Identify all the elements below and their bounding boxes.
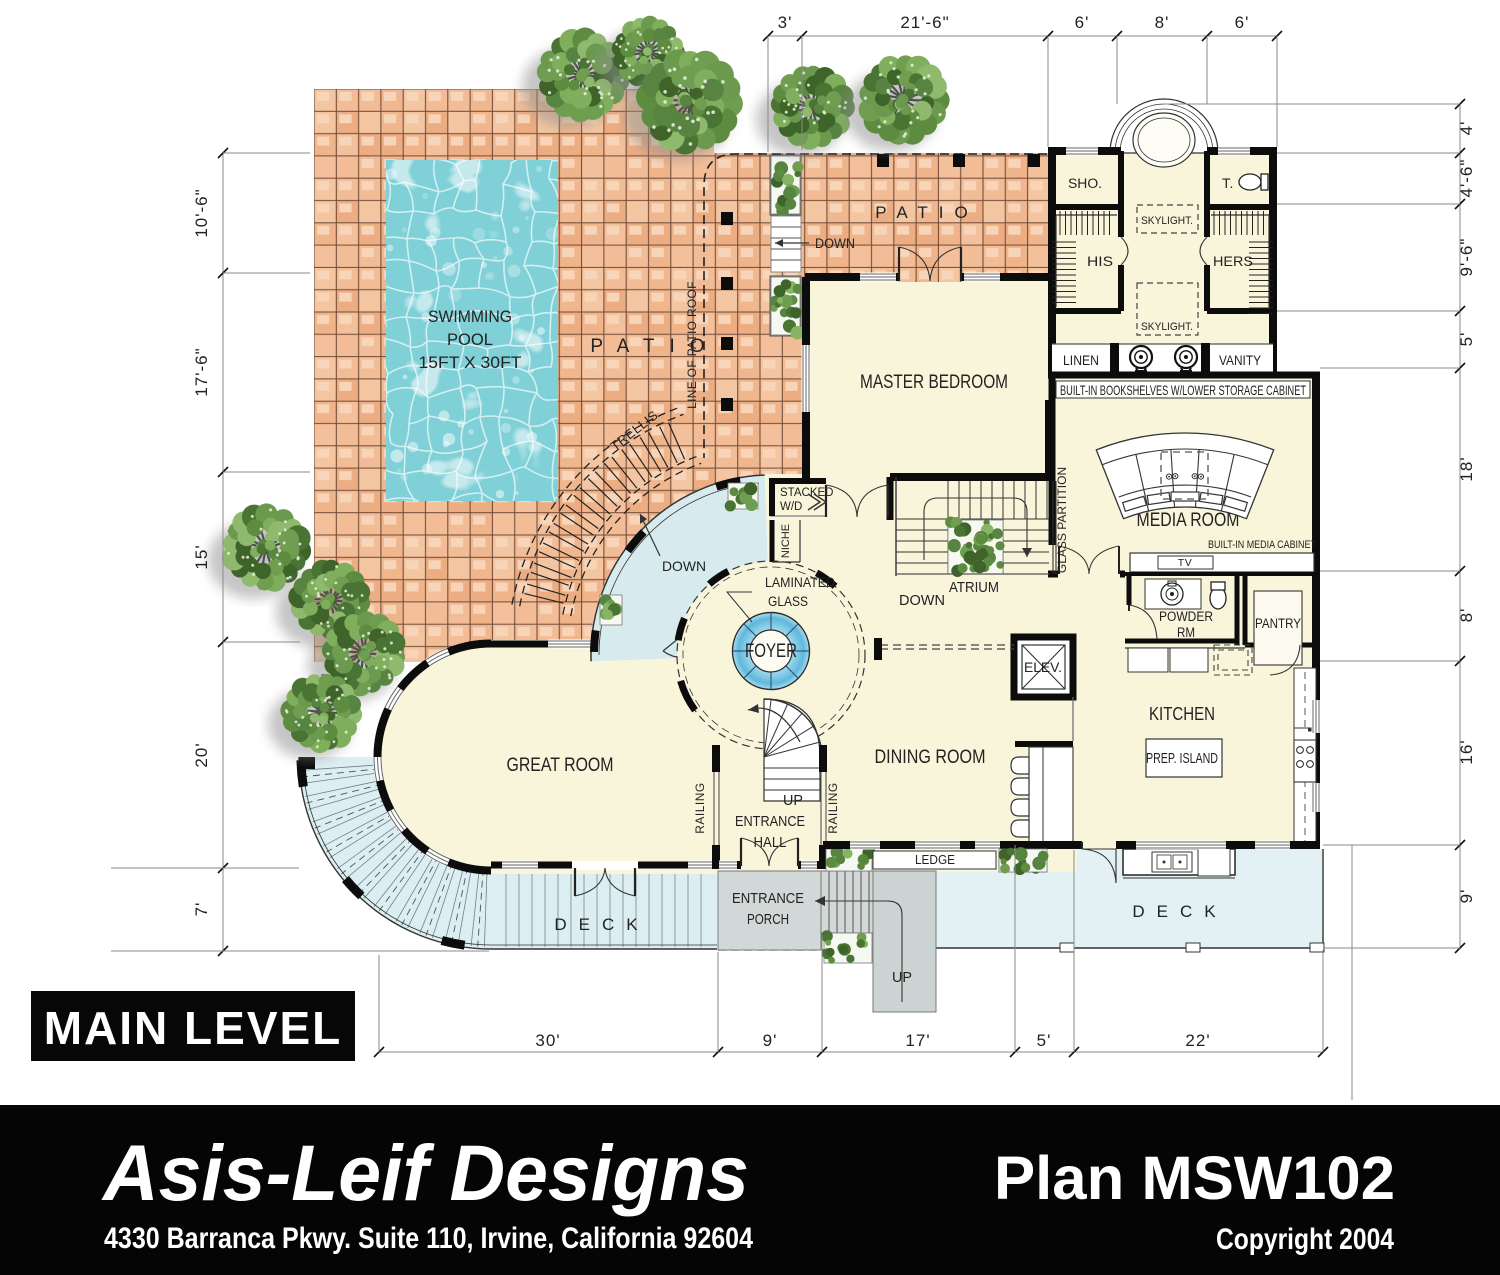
svg-text:GLASS PARTITION: GLASS PARTITION bbox=[1055, 467, 1069, 573]
svg-text:6': 6' bbox=[1075, 13, 1090, 32]
svg-text:PORCH: PORCH bbox=[747, 911, 789, 928]
svg-text:16': 16' bbox=[1457, 739, 1476, 764]
svg-text:PATIO: PATIO bbox=[590, 336, 719, 357]
svg-text:DOWN: DOWN bbox=[815, 236, 855, 251]
svg-text:HIS: HIS bbox=[1087, 254, 1113, 269]
svg-text:DOWN: DOWN bbox=[899, 593, 945, 609]
svg-text:18': 18' bbox=[1457, 456, 1476, 481]
svg-text:6': 6' bbox=[1235, 13, 1250, 32]
svg-text:GREAT ROOM: GREAT ROOM bbox=[507, 754, 614, 776]
svg-text:4330 Barranca Pkwy. Suite 110,: 4330 Barranca Pkwy. Suite 110, Irvine, C… bbox=[104, 1222, 753, 1255]
svg-text:GLASS: GLASS bbox=[768, 594, 808, 609]
svg-text:VANITY: VANITY bbox=[1219, 353, 1261, 368]
svg-text:17'-6": 17'-6" bbox=[192, 347, 211, 396]
svg-text:W/D: W/D bbox=[780, 501, 802, 513]
svg-text:NICHE: NICHE bbox=[780, 524, 792, 558]
svg-text:20': 20' bbox=[192, 742, 211, 767]
svg-text:POWDER: POWDER bbox=[1159, 609, 1213, 624]
svg-text:Asis-Leif Designs: Asis-Leif Designs bbox=[101, 1128, 749, 1217]
svg-text:DINING ROOM: DINING ROOM bbox=[875, 746, 986, 768]
svg-text:MASTER BEDROOM: MASTER BEDROOM bbox=[860, 372, 1008, 393]
svg-text:3': 3' bbox=[778, 13, 793, 32]
svg-text:LAMINATED: LAMINATED bbox=[765, 575, 835, 590]
svg-text:RM: RM bbox=[1177, 625, 1195, 640]
svg-text:15FT X 30FT: 15FT X 30FT bbox=[419, 354, 522, 372]
svg-text:Copyright 2004: Copyright 2004 bbox=[1216, 1223, 1394, 1256]
svg-text:21'-6": 21'-6" bbox=[900, 13, 949, 32]
svg-text:ENTRANCE: ENTRANCE bbox=[732, 890, 804, 907]
svg-text:9': 9' bbox=[1457, 889, 1476, 904]
svg-text:DOWN: DOWN bbox=[662, 558, 706, 574]
svg-text:T.: T. bbox=[1222, 175, 1234, 191]
svg-text:MAIN LEVEL: MAIN LEVEL bbox=[44, 1002, 343, 1054]
svg-text:DECK: DECK bbox=[1132, 902, 1227, 921]
svg-text:SKYLIGHT.: SKYLIGHT. bbox=[1141, 215, 1193, 227]
svg-text:FOYER: FOYER bbox=[745, 641, 797, 662]
svg-text:LINE OF PATIO ROOF: LINE OF PATIO ROOF bbox=[685, 281, 699, 409]
svg-text:STACKED: STACKED bbox=[780, 487, 833, 499]
svg-text:RAILING: RAILING bbox=[826, 782, 840, 834]
svg-text:DECK: DECK bbox=[554, 915, 649, 934]
svg-text:PREP. ISLAND: PREP. ISLAND bbox=[1146, 750, 1218, 767]
svg-text:SKYLIGHT.: SKYLIGHT. bbox=[1141, 321, 1193, 333]
svg-text:30': 30' bbox=[535, 1031, 560, 1050]
svg-text:9': 9' bbox=[763, 1031, 778, 1050]
svg-text:KITCHEN: KITCHEN bbox=[1149, 703, 1215, 724]
svg-text:ENTRANCE: ENTRANCE bbox=[735, 813, 805, 830]
svg-text:7': 7' bbox=[192, 902, 211, 917]
svg-text:BUILT-IN MEDIA CABINET: BUILT-IN MEDIA CABINET bbox=[1208, 539, 1316, 551]
svg-text:UP: UP bbox=[783, 792, 803, 809]
svg-text:SWIMMING: SWIMMING bbox=[428, 308, 512, 326]
svg-text:8': 8' bbox=[1155, 13, 1170, 32]
svg-text:Plan MSW102: Plan MSW102 bbox=[994, 1144, 1395, 1212]
svg-text:PATIO: PATIO bbox=[875, 203, 979, 222]
svg-text:HALL: HALL bbox=[754, 834, 787, 851]
svg-text:PANTRY: PANTRY bbox=[1255, 616, 1301, 631]
svg-text:POOL: POOL bbox=[447, 331, 493, 349]
svg-text:LINEN: LINEN bbox=[1063, 353, 1099, 368]
svg-text:9'-6": 9'-6" bbox=[1457, 238, 1476, 277]
svg-text:MEDIA ROOM: MEDIA ROOM bbox=[1137, 509, 1240, 531]
svg-text:ATRIUM: ATRIUM bbox=[949, 580, 999, 596]
svg-text:5': 5' bbox=[1457, 332, 1476, 347]
svg-text:4'-6": 4'-6" bbox=[1457, 159, 1476, 198]
svg-text:8': 8' bbox=[1457, 608, 1476, 623]
svg-text:RAILING: RAILING bbox=[693, 782, 707, 834]
svg-text:22': 22' bbox=[1185, 1031, 1210, 1050]
svg-text:17': 17' bbox=[905, 1031, 930, 1050]
svg-text:TV: TV bbox=[1178, 557, 1192, 569]
svg-text:LEDGE: LEDGE bbox=[915, 853, 955, 867]
svg-text:10'-6": 10'-6" bbox=[192, 188, 211, 237]
svg-text:4': 4' bbox=[1457, 121, 1476, 136]
svg-text:HERS: HERS bbox=[1213, 254, 1253, 269]
svg-text:ELEV.: ELEV. bbox=[1024, 660, 1062, 675]
svg-text:5': 5' bbox=[1037, 1031, 1052, 1050]
svg-text:SHO.: SHO. bbox=[1068, 176, 1102, 191]
svg-text:15': 15' bbox=[192, 544, 211, 569]
svg-text:BUILT-IN BOOKSHELVES W/LOWER S: BUILT-IN BOOKSHELVES W/LOWER STORAGE CAB… bbox=[1060, 382, 1306, 398]
